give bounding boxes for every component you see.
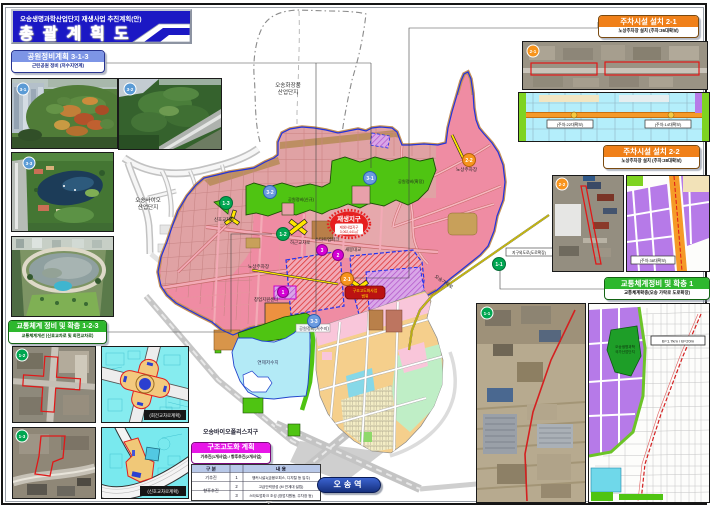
svg-text:2-2: 2-2 bbox=[559, 182, 566, 187]
svg-text:1-3: 1-3 bbox=[19, 434, 26, 439]
svg-text:(회전교차로계획): (회전교차로계획) bbox=[149, 412, 181, 419]
svg-text:신호교차로: 신호교차로 bbox=[214, 216, 234, 223]
svg-text:스타트업파크 조성 (창업지원동, 주차장 등): 스타트업파크 조성 (창업지원동, 주차장 등) bbox=[249, 493, 313, 498]
svg-text:3,062,441㎡: 3,062,441㎡ bbox=[340, 229, 359, 234]
svg-text:내 용: 내 용 bbox=[276, 466, 287, 473]
svg-text:공원정비(신규): 공원정비(신규) bbox=[288, 196, 315, 203]
svg-text:2-2: 2-2 bbox=[465, 158, 472, 164]
svg-text:2-1: 2-1 bbox=[343, 277, 350, 283]
svg-text:노상주차장: 노상주차장 bbox=[248, 263, 270, 270]
svg-text:3-3: 3-3 bbox=[310, 319, 317, 325]
svg-text:스타트업파크: 스타트업파크 bbox=[315, 236, 339, 243]
svg-text:산업단지: 산업단지 bbox=[138, 203, 159, 211]
svg-text:1-1: 1-1 bbox=[495, 262, 502, 268]
svg-text:오송바이오: 오송바이오 bbox=[135, 196, 161, 204]
svg-text:3-2: 3-2 bbox=[266, 190, 273, 196]
svg-text:지구외도로(도로확장): 지구외도로(도로확장) bbox=[512, 250, 547, 255]
svg-text:3-1: 3-1 bbox=[366, 176, 373, 182]
svg-text:1-3: 1-3 bbox=[222, 201, 229, 207]
svg-text:하근교차로: 하근교차로 bbox=[290, 239, 310, 246]
svg-text:오송화장품: 오송화장품 bbox=[275, 81, 301, 89]
svg-text:재생지구: 재생지구 bbox=[337, 214, 361, 223]
svg-text:(주차:38대확보): (주차:38대확보) bbox=[640, 257, 667, 263]
svg-text:앵커시설1(금융오피스, 디지털 등 입주): 앵커시설1(금융오피스, 디지털 등 입주) bbox=[252, 475, 310, 480]
svg-text:B=1.7km / B=20m: B=1.7km / B=20m bbox=[662, 339, 695, 344]
svg-text:1-1: 1-1 bbox=[484, 311, 491, 316]
svg-text:국가산업단지: 국가산업단지 bbox=[615, 349, 635, 354]
svg-text:재생사업지구: 재생사업지구 bbox=[340, 225, 359, 230]
svg-text:산업단지: 산업단지 bbox=[278, 88, 299, 96]
svg-text:2-1: 2-1 bbox=[530, 49, 537, 54]
svg-text:3: 3 bbox=[235, 493, 238, 498]
svg-text:창업지원센터: 창업지원센터 bbox=[254, 296, 278, 303]
svg-text:2: 2 bbox=[337, 253, 340, 259]
svg-text:공원정비(확장): 공원정비(확장) bbox=[398, 178, 425, 185]
svg-text:연제저수지: 연제저수지 bbox=[257, 359, 278, 366]
svg-text:구조고도화사업: 구조고도화사업 bbox=[353, 288, 378, 293]
svg-text:3: 3 bbox=[321, 248, 324, 254]
svg-text:기추진: 기추진 bbox=[205, 474, 217, 481]
svg-text:1-2: 1-2 bbox=[19, 353, 26, 358]
svg-text:1-2: 1-2 bbox=[279, 232, 286, 238]
svg-text:(주차:14대확보): (주차:14대확보) bbox=[655, 121, 682, 127]
svg-text:고급인력양성 (M 연계대 설립): 고급인력양성 (M 연계대 설립) bbox=[259, 484, 304, 489]
svg-text:1: 1 bbox=[235, 475, 238, 480]
svg-text:1: 1 bbox=[282, 290, 285, 296]
svg-text:(주차:22대확보): (주차:22대확보) bbox=[557, 121, 584, 127]
svg-text:2: 2 bbox=[235, 484, 238, 489]
svg-text:향후추진: 향후추진 bbox=[203, 487, 219, 494]
svg-text:3-3: 3-3 bbox=[26, 161, 33, 166]
svg-text:오송생명과학: 오송생명과학 bbox=[615, 344, 636, 349]
svg-text:3-2: 3-2 bbox=[127, 87, 134, 92]
svg-text:구 분: 구 분 bbox=[206, 466, 217, 473]
svg-text:3-1: 3-1 bbox=[20, 87, 27, 92]
svg-text:노상주차장: 노상주차장 bbox=[456, 166, 478, 173]
svg-text:범위: 범위 bbox=[362, 294, 369, 299]
svg-text:새봉대교: 새봉대교 bbox=[345, 246, 361, 253]
svg-text:(신호교차로계획): (신호교차로계획) bbox=[147, 488, 179, 495]
